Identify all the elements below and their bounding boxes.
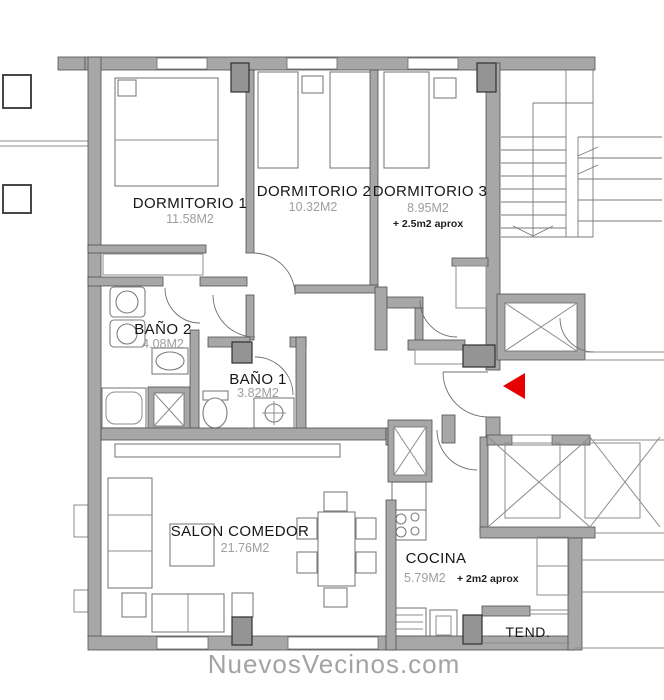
area-bano-2: 4.08M2 bbox=[142, 337, 184, 351]
area-cocina: 5.79M2 bbox=[404, 571, 446, 585]
label-tendedero: TEND. bbox=[506, 624, 551, 640]
label-dormitorio-2: DORMITORIO 2 bbox=[257, 183, 372, 200]
floorplan: DORMITORIO 1 11.58M2 DORMITORIO 2 10.32M… bbox=[0, 0, 664, 700]
label-dormitorio-3: DORMITORIO 3 bbox=[373, 183, 488, 200]
area-dormitorio-2: 10.32M2 bbox=[289, 200, 338, 214]
beds-dormitorio-2 bbox=[258, 72, 373, 168]
area-dormitorio-1: 11.58M2 bbox=[166, 212, 214, 226]
area-dormitorio-3: 8.95M2 bbox=[407, 201, 449, 215]
neighbor-left-fixtures bbox=[0, 75, 88, 612]
label-salon-comedor: SALON COMEDOR bbox=[171, 523, 310, 540]
dining-table-set bbox=[297, 492, 376, 607]
label-cocina: COCINA bbox=[406, 550, 467, 567]
floorplan-page: DORMITORIO 1 11.58M2 DORMITORIO 2 10.32M… bbox=[0, 0, 664, 700]
label-dormitorio-1: DORMITORIO 1 bbox=[133, 195, 248, 212]
shaft-kitchen bbox=[388, 420, 432, 482]
watermark: NuevosVecinos.com bbox=[208, 649, 461, 679]
area-salon-comedor: 21.76M2 bbox=[221, 541, 270, 555]
label-bano-2: BAÑO 2 bbox=[134, 321, 191, 338]
entrance-arrow bbox=[503, 373, 525, 399]
elevator-upper bbox=[497, 294, 585, 360]
area-extra-dormitorio-3: + 2.5m2 aprox bbox=[393, 218, 463, 230]
bed-dormitorio-1 bbox=[115, 78, 218, 186]
staircase bbox=[501, 70, 662, 237]
bed-dormitorio-3 bbox=[384, 72, 456, 168]
area-extra-cocina: + 2m2 aprox bbox=[457, 573, 519, 585]
area-bano-1: 3.82M2 bbox=[237, 386, 279, 400]
bathroom2-fixtures bbox=[102, 287, 190, 432]
